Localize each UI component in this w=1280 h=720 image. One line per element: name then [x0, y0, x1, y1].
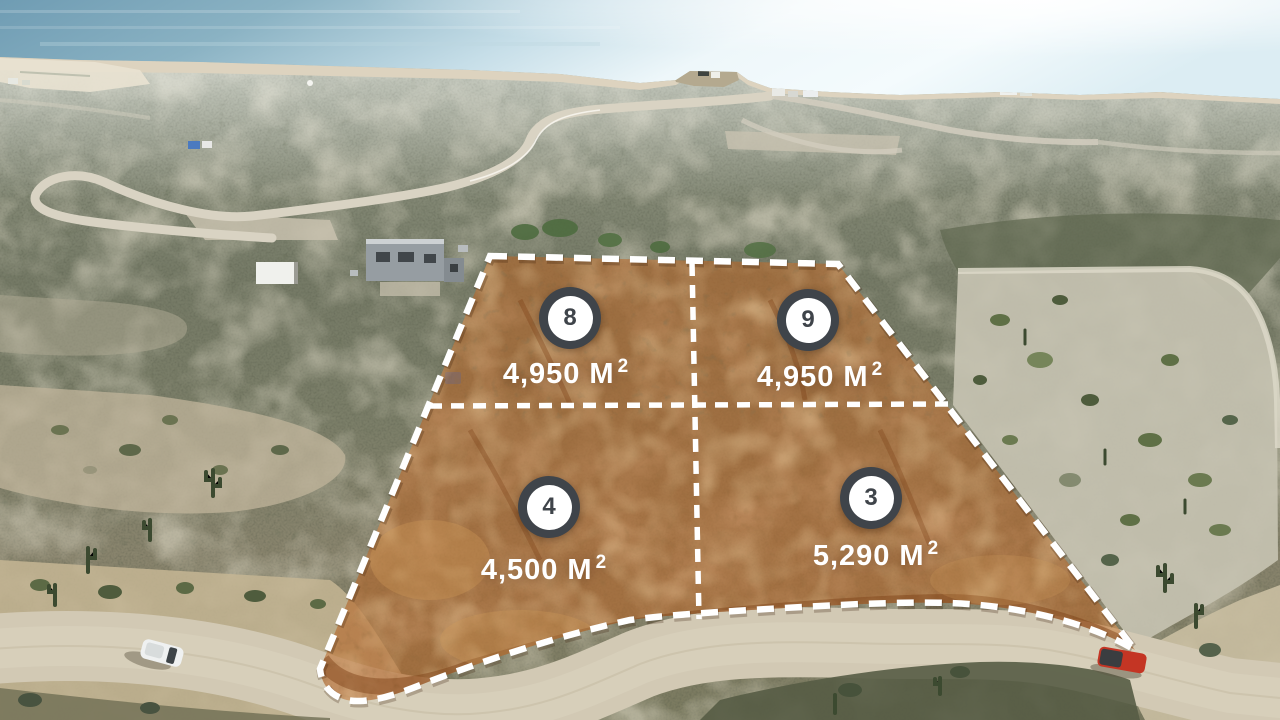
lot-number-circle: 4	[527, 485, 572, 530]
lot-marker-9: 9	[777, 289, 839, 351]
lot-number: 4	[542, 493, 555, 521]
area-unit: M	[843, 361, 868, 393]
lot-number: 3	[864, 484, 877, 512]
area-superscript: 2	[928, 538, 940, 559]
lot-area-label-9: 4,950M2	[757, 361, 883, 394]
area-superscript: 2	[872, 359, 884, 380]
lot-number: 8	[563, 304, 576, 332]
lot-marker-8: 8	[539, 287, 601, 349]
area-superscript: 2	[618, 356, 630, 377]
area-value: 5,290	[813, 540, 891, 572]
area-superscript: 2	[596, 552, 608, 573]
lot-area-label-3: 5,290M2	[813, 540, 939, 573]
lot-area-label-4: 4,500M2	[481, 554, 607, 587]
aerial-scene-svg	[0, 0, 1280, 720]
area-value: 4,950	[757, 361, 835, 393]
aerial-photo: 8 4,950M2 9 4,950M2 4 4,500M2 3 5,290M2	[0, 0, 1280, 720]
lot-number-circle: 9	[786, 298, 831, 343]
area-unit: M	[589, 358, 614, 390]
lot-number-circle: 3	[849, 476, 894, 521]
area-value: 4,950	[503, 358, 581, 390]
lot-number: 9	[801, 306, 814, 334]
area-unit: M	[899, 540, 924, 572]
area-value: 4,500	[481, 554, 559, 586]
lot-area-label-8: 4,950M2	[503, 358, 629, 391]
area-unit: M	[567, 554, 592, 586]
lot-marker-3: 3	[840, 467, 902, 529]
lot-marker-4: 4	[518, 476, 580, 538]
lot-number-circle: 8	[548, 296, 593, 341]
